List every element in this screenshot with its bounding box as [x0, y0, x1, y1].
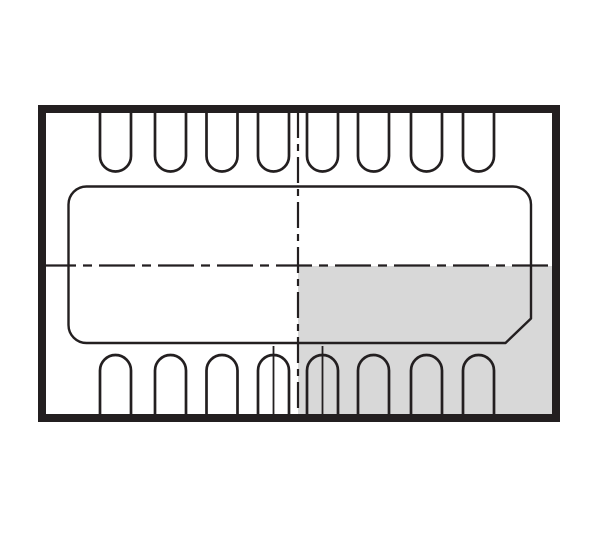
- top-pin-1: [100, 110, 131, 172]
- package-diagram-svg: [0, 0, 600, 533]
- top-pin-3: [207, 110, 238, 172]
- top-pin-7: [411, 110, 442, 172]
- bottom-pin-2: [155, 355, 186, 417]
- bottom-pin-3: [207, 355, 238, 417]
- top-pin-6: [358, 110, 389, 172]
- top-pin-2: [155, 110, 186, 172]
- top-pin-8: [463, 110, 494, 172]
- bottom-pin-1: [100, 355, 131, 417]
- package-diagram: [0, 0, 600, 533]
- top-pin-5: [307, 110, 338, 172]
- top-pin-4: [258, 110, 289, 172]
- shaded-quadrant: [298, 266, 552, 414]
